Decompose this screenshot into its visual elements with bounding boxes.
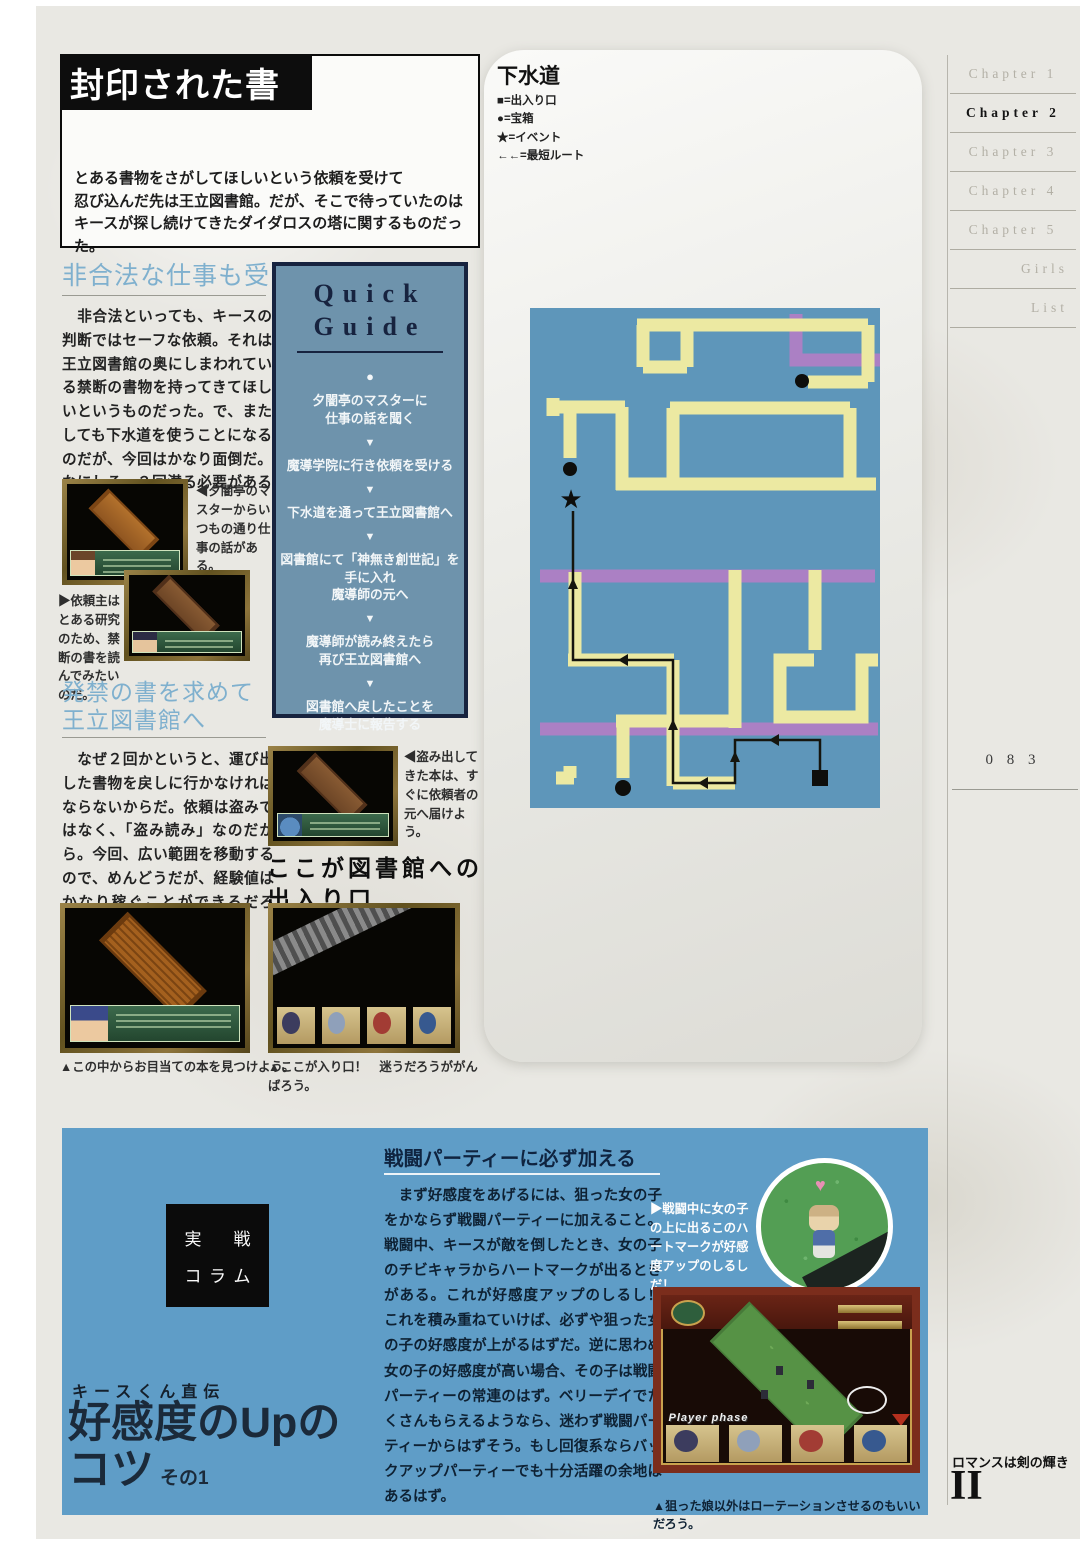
divider — [62, 737, 266, 738]
phase-banner: Player phase — [669, 1412, 749, 1424]
page-title: 封印された書 — [60, 54, 312, 110]
column-title-note: その1 — [160, 1468, 209, 1489]
guide-step: 魔導学院に行き依頼を受ける — [276, 457, 464, 475]
legend-route: ←←=最短ルート — [497, 147, 584, 165]
chest-marker — [615, 780, 631, 796]
sidebar-divider — [947, 55, 948, 1505]
screenshot-library — [60, 903, 250, 1053]
guide-step: 図書館へ戻したことを 魔導士に報告する — [276, 698, 464, 734]
down-triangle-icon: ▼ — [276, 531, 464, 543]
divider — [62, 295, 266, 296]
battle-column-panel: 実 戦 コ ラ ム キースくん直伝 好感度のUpの コツその1 戦闘パーティーに… — [62, 1128, 928, 1515]
guide-step: 図書館にて「神無き創世記」を 手に入れ 魔導師の元へ — [276, 551, 464, 605]
status-bar — [838, 1305, 902, 1313]
sewer-map: ★ — [530, 308, 880, 808]
guide-step: 魔導師が読み終えたら 再び王立図書館へ — [276, 633, 464, 669]
down-triangle-icon: ▼ — [276, 613, 464, 625]
status-bar — [838, 1321, 902, 1329]
legend-chest: ●=宝箱 — [497, 110, 584, 128]
screenshot-deliver-book — [268, 746, 398, 846]
screenshot-client-room — [124, 570, 250, 661]
heart-icon: ♥ — [815, 1175, 826, 1196]
column-title: 好感度のUpの コツその1 — [68, 1400, 340, 1495]
highlight-circle — [847, 1386, 887, 1414]
bullet-icon: ● — [276, 369, 464, 384]
caption-library: ▲この中からお目当ての本を見つけよう。 — [60, 1058, 300, 1077]
sidebar-item-chapter1: Chapter 1 — [950, 55, 1076, 94]
screenshot-battle: Player phase — [653, 1287, 920, 1473]
title-panel: 封印された書 とある書物をさがしてほしいという依頼を受けて 忍び込んだ先は王立図… — [60, 54, 480, 248]
sidebar-item-girls: Girls — [950, 250, 1076, 289]
intro-text: とある書物をさがしてほしいという依頼を受けて 忍び込んだ先は王立図書館。だが、そ… — [74, 168, 470, 258]
caption-rotation: ▲狙った娘以外はローテーションさせるのもいいだろう。 — [653, 1496, 929, 1532]
caption-master: ◀夕闇亭のマスターからいつもの通り仕事の話がある。 — [196, 482, 280, 576]
divider — [297, 351, 443, 353]
heart-closeup-inset: ♥ — [756, 1158, 893, 1295]
entrance-marker — [812, 770, 828, 786]
screenshot-entrance — [268, 903, 460, 1053]
volume-numeral: II — [950, 1462, 983, 1510]
chest-marker — [795, 374, 809, 388]
chibi-character — [809, 1205, 839, 1231]
divider — [384, 1173, 660, 1175]
section-heading-library: 発禁の書を求めて 王立図書館へ — [62, 679, 254, 734]
event-star-marker: ★ — [559, 484, 582, 514]
map-legend: ■=出入り口 ●=宝箱 ★=イベント ←←=最短ルート — [497, 92, 584, 166]
compass-emblem — [671, 1300, 705, 1326]
sidebar-item-chapter3: Chapter 3 — [950, 133, 1076, 172]
chest-marker — [563, 462, 577, 476]
quick-guide-title: Quick Guide — [276, 278, 464, 343]
column-body: まず好感度をあげるには、狙った女の子をかならず戦闘パーティーに加えること。戦闘中… — [384, 1184, 662, 1510]
legend-entrance: ■=出入り口 — [497, 92, 584, 110]
column-badge: 実 戦 コ ラ ム — [166, 1204, 269, 1307]
caption-heart: ▶戦闘中に女の子の上に出るこのハートマークが好感度アップのしるしだ！ — [650, 1200, 760, 1295]
divider — [952, 789, 1078, 790]
sidebar-item-chapter2: Chapter 2 — [950, 94, 1076, 133]
legend-event: ★=イベント — [497, 129, 584, 147]
chapter-sidebar: Chapter 1 Chapter 2 Chapter 3 Chapter 4 … — [950, 55, 1076, 328]
map-title: 下水道 — [497, 60, 560, 90]
down-triangle-icon: ▼ — [276, 678, 464, 690]
sidebar-item-list: List — [950, 289, 1076, 328]
sidebar-item-chapter5: Chapter 5 — [950, 211, 1076, 250]
down-triangle-icon: ▼ — [276, 484, 464, 496]
caption-book: ◀盗み出してきた本は、すぐに依頼者の元へ届けよう。 — [404, 748, 480, 842]
quick-guide-box: Quick Guide ● 夕闇亭のマスターに 仕事の話を聞く ▼ 魔導学院に行… — [272, 262, 468, 718]
down-triangle-icon: ▼ — [276, 437, 464, 449]
page-number: 0 8 3 — [950, 752, 1076, 769]
guide-step: 夕闇亭のマスターに 仕事の話を聞く — [276, 392, 464, 428]
sidebar-item-chapter4: Chapter 4 — [950, 172, 1076, 211]
guide-step: 下水道を通って王立図書館へ — [276, 504, 464, 522]
column-header: 戦闘パーティーに必ず加える — [384, 1142, 636, 1171]
caption-entrance: ▲ここが入り口！ 迷うだろうががんばろう。 — [268, 1058, 482, 1096]
